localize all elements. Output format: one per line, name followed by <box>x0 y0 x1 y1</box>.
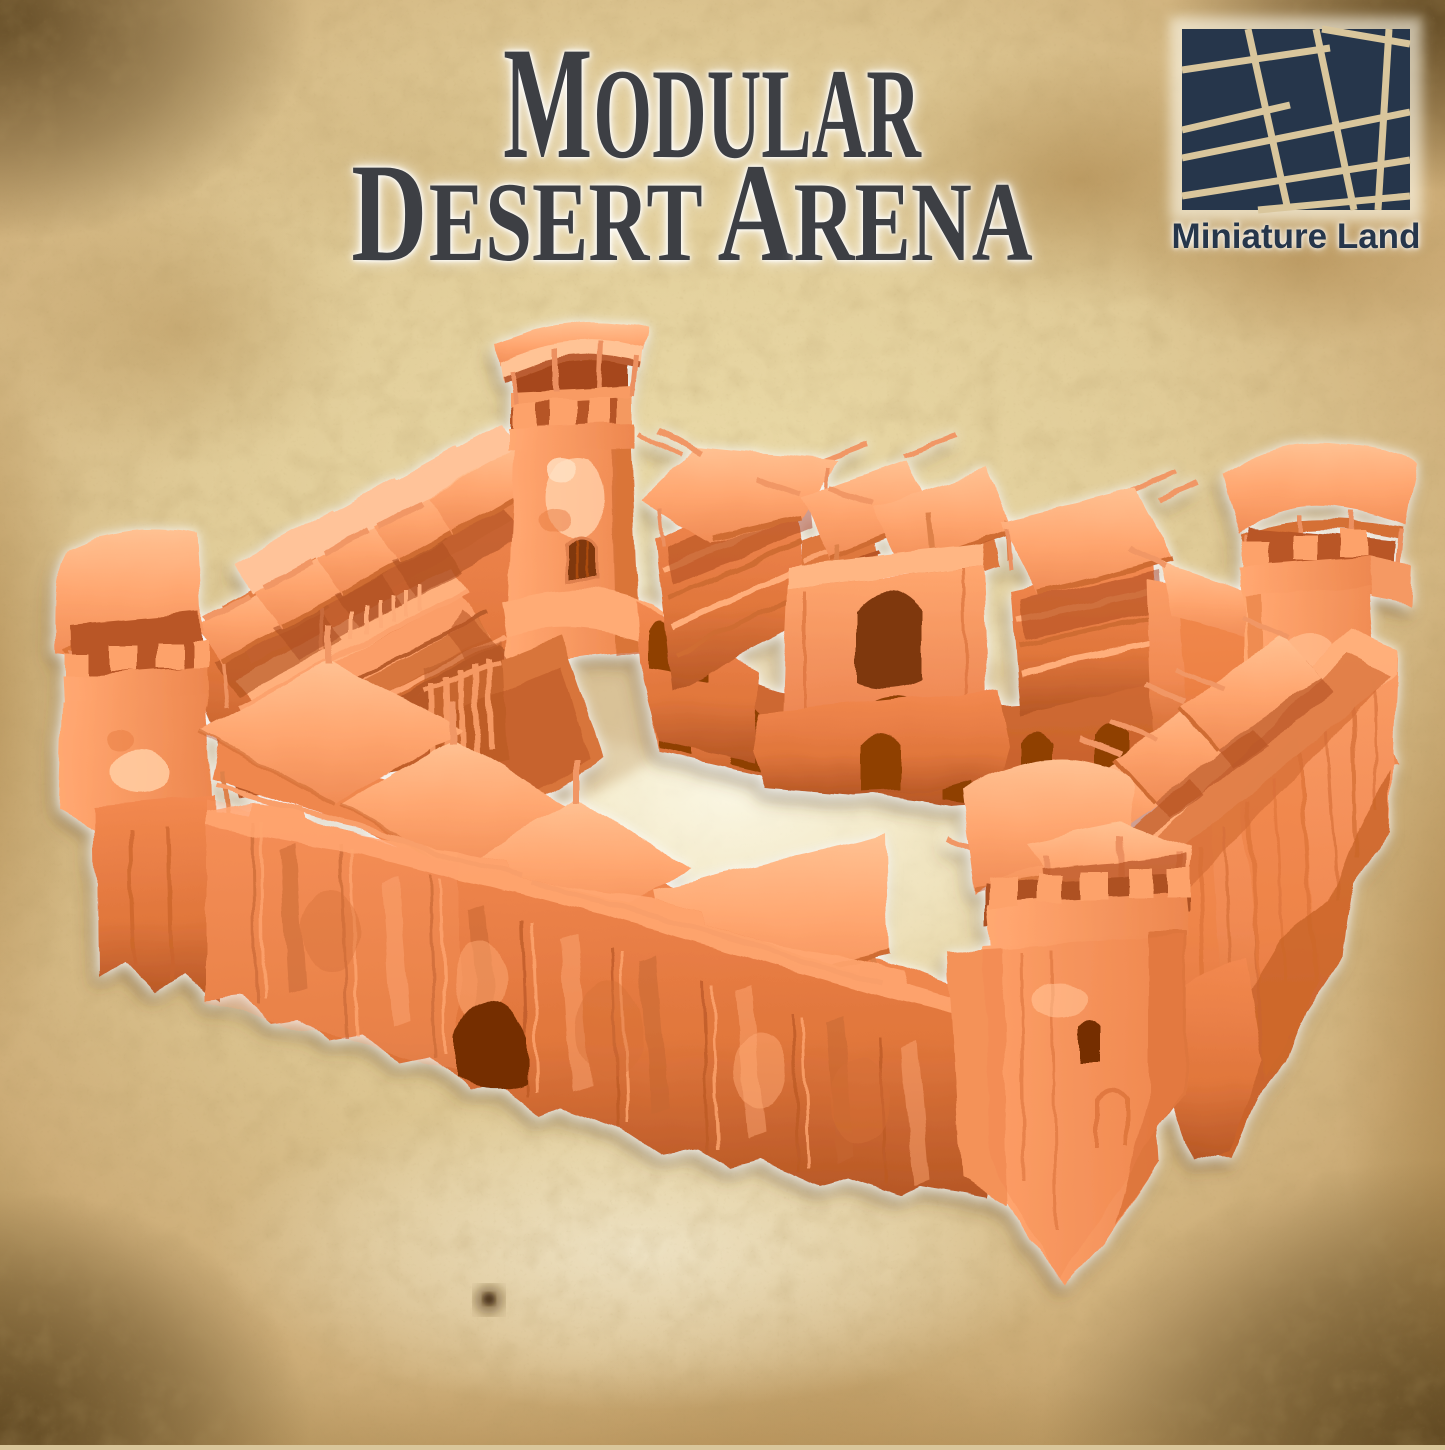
svg-text:Miniature Land: Miniature Land <box>1172 217 1421 256</box>
